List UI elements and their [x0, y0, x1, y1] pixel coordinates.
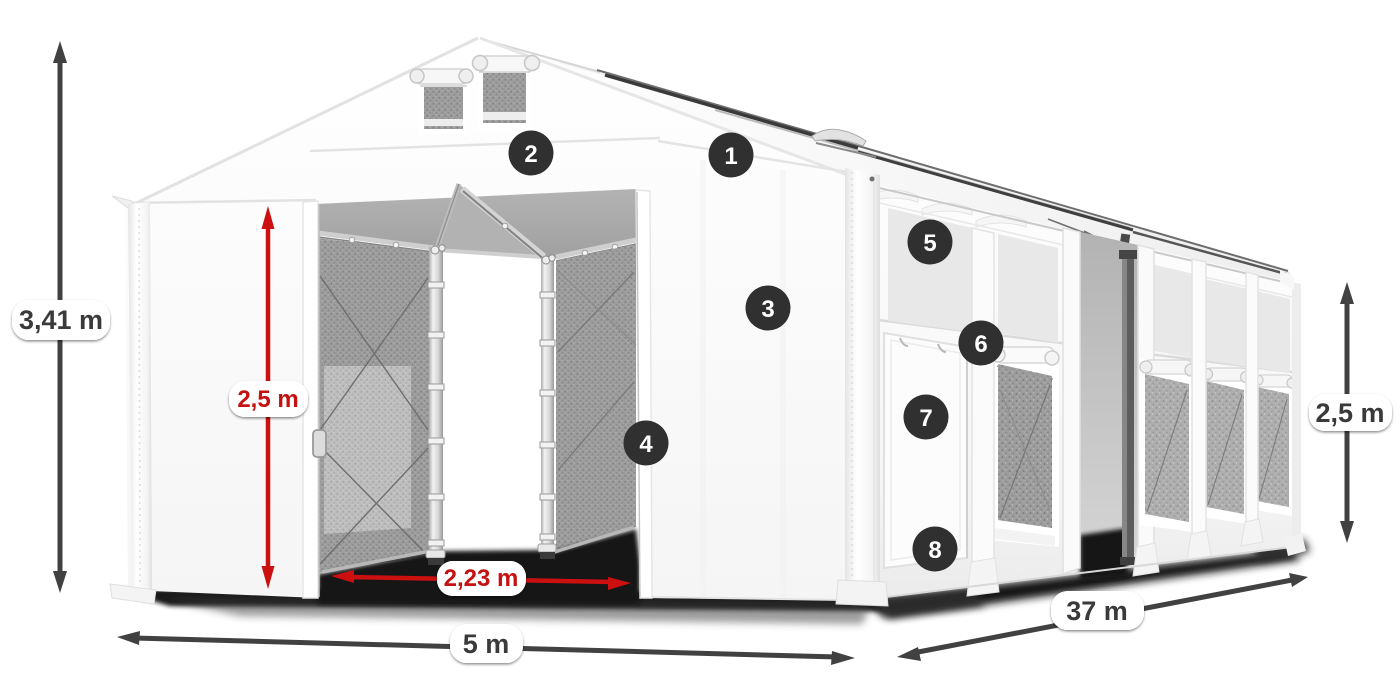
svg-text:6: 6	[974, 331, 987, 358]
svg-text:3,41 m: 3,41 m	[19, 305, 103, 335]
svg-text:2,5 m: 2,5 m	[237, 386, 298, 413]
svg-text:5: 5	[923, 230, 936, 257]
svg-text:37 m: 37 m	[1066, 596, 1128, 626]
svg-text:3: 3	[761, 296, 774, 323]
svg-text:1: 1	[724, 143, 737, 170]
svg-text:5 m: 5 m	[463, 629, 510, 659]
svg-text:8: 8	[928, 537, 941, 564]
svg-text:2: 2	[524, 141, 537, 168]
svg-text:4: 4	[639, 431, 653, 458]
svg-text:2,5 m: 2,5 m	[1315, 398, 1384, 428]
svg-text:7: 7	[919, 405, 932, 432]
svg-text:2,23 m: 2,23 m	[444, 565, 519, 592]
